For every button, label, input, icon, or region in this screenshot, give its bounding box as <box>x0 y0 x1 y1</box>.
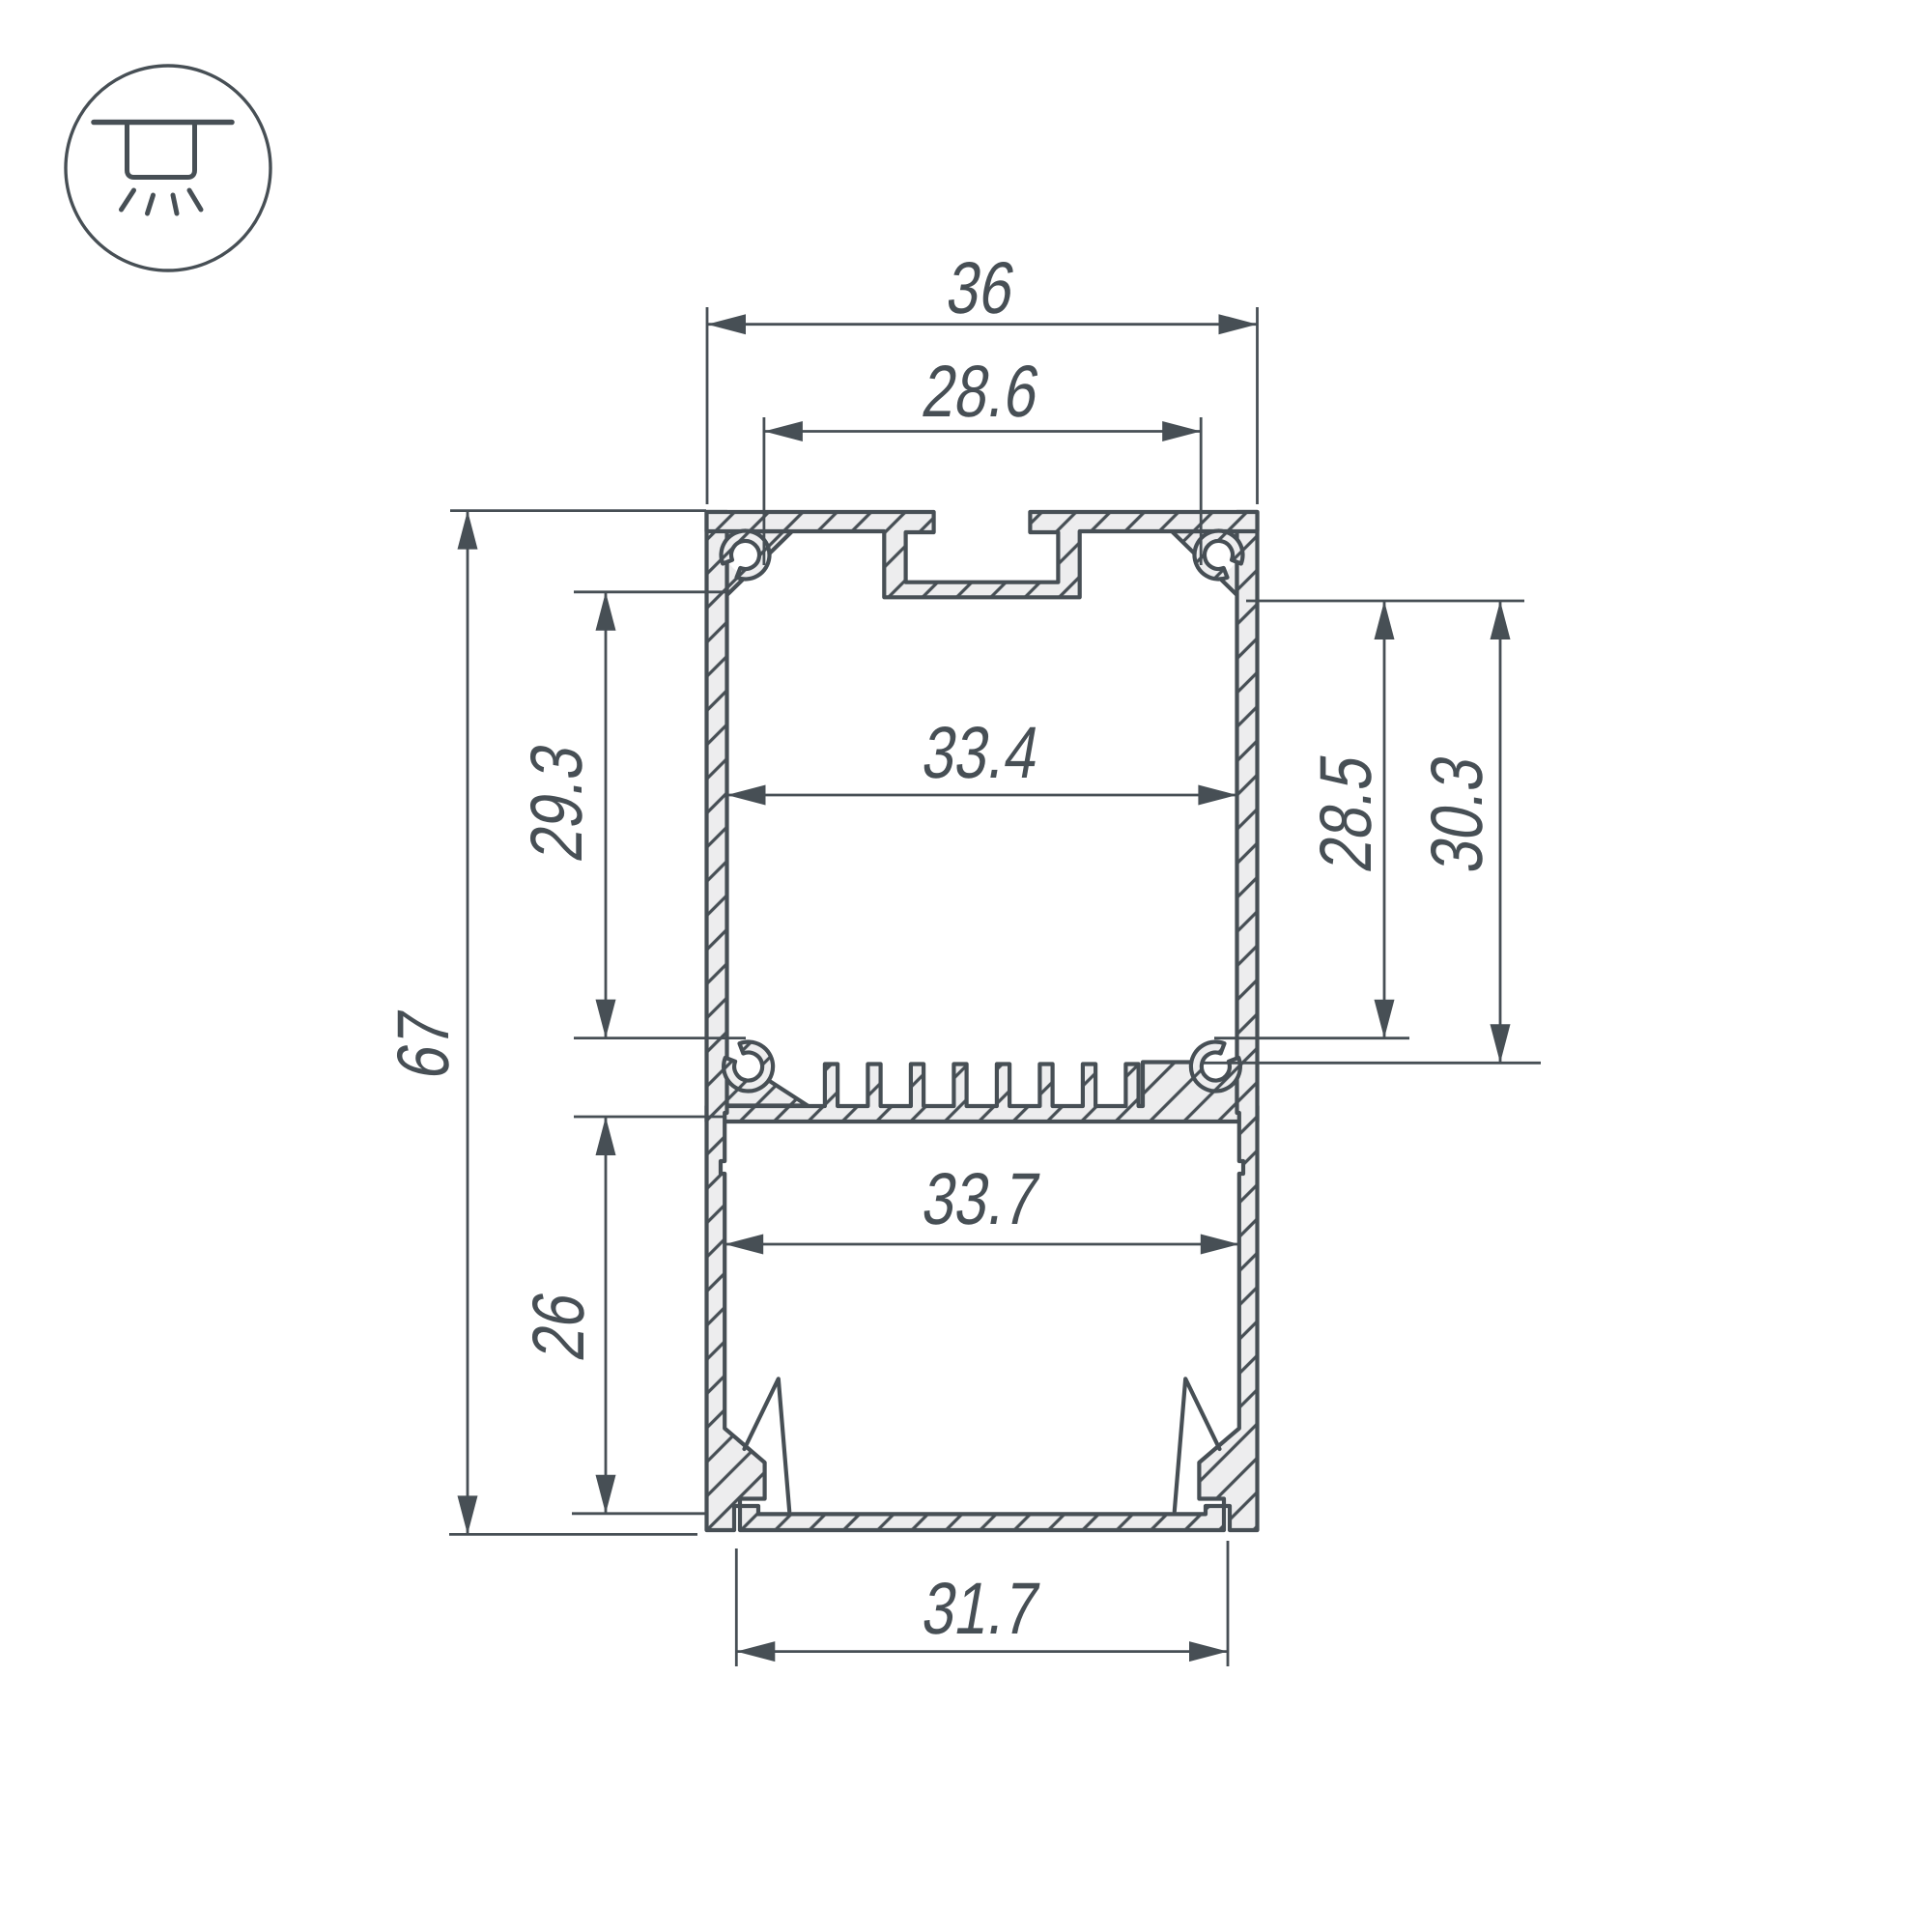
svg-text:30.3: 30.3 <box>1415 749 1497 877</box>
svg-text:31.7: 31.7 <box>917 1567 1045 1649</box>
svg-text:28.5: 28.5 <box>1304 748 1386 876</box>
svg-text:33.4: 33.4 <box>917 711 1045 793</box>
svg-text:28.6: 28.6 <box>917 350 1045 432</box>
svg-text:29.3: 29.3 <box>515 737 597 866</box>
svg-text:33.7: 33.7 <box>917 1157 1045 1239</box>
